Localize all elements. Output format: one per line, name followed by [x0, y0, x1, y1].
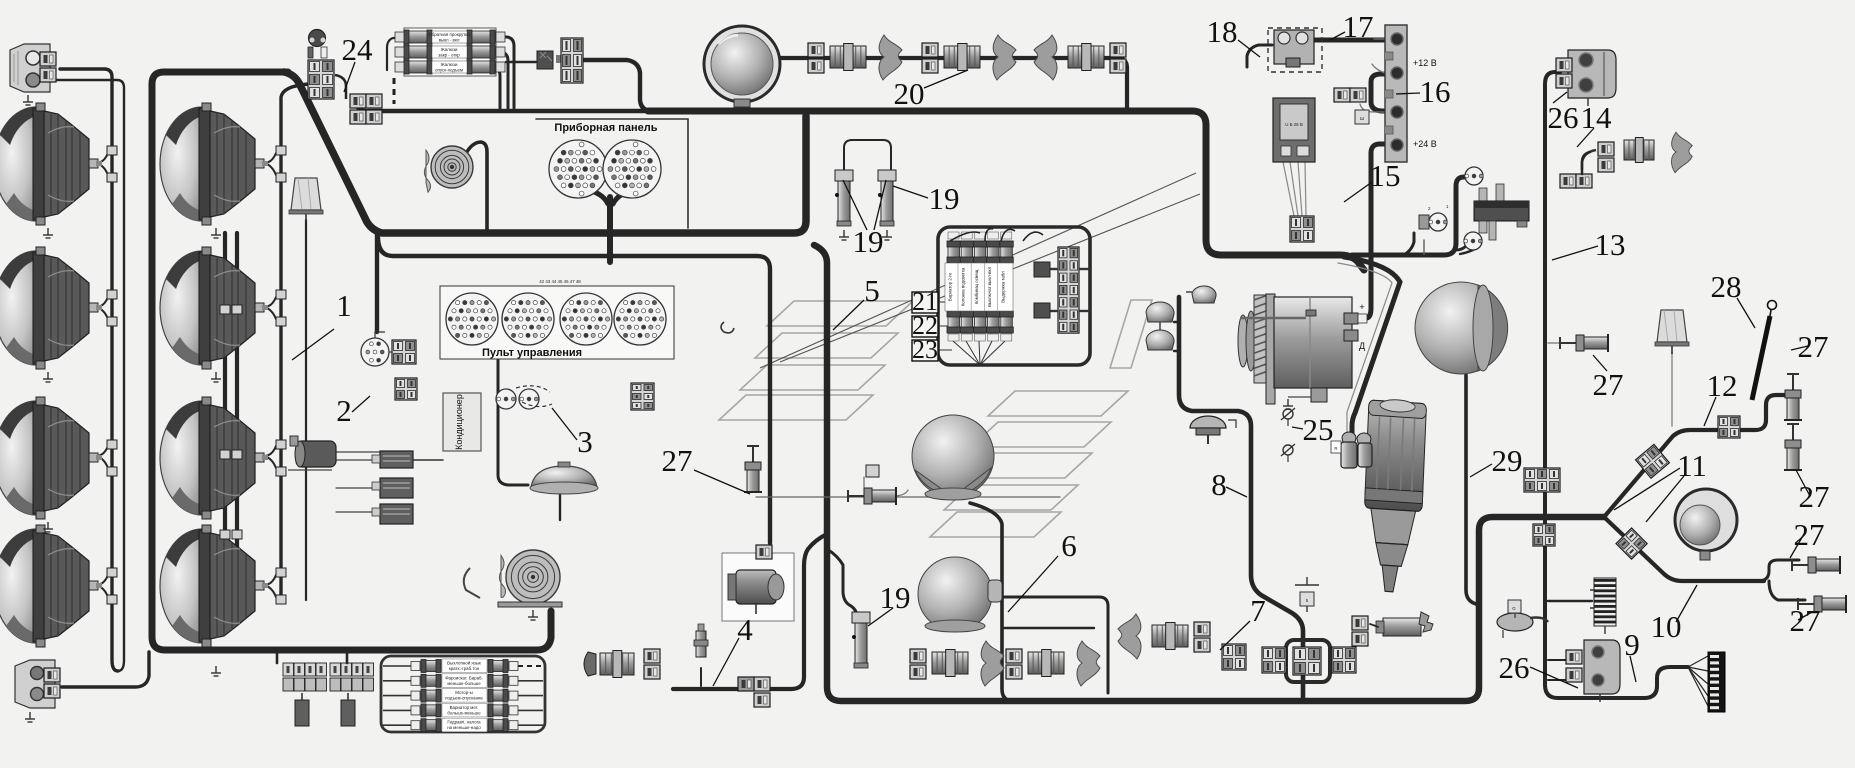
svg-text:16: 16: [1420, 74, 1451, 109]
svg-text:9: 9: [1624, 627, 1640, 662]
svg-text:+24 В: +24 В: [1413, 139, 1437, 149]
svg-text:5: 5: [864, 273, 880, 308]
svg-text:Ш: Ш: [1360, 116, 1364, 121]
svg-text:Выхлопной язык: Выхлопной язык: [447, 661, 481, 666]
svg-text:19: 19: [853, 224, 884, 259]
svg-text:подъем-опускание: подъем-опускание: [445, 696, 483, 701]
svg-text:Комбинац освещ: Комбинац освещ: [974, 269, 979, 304]
svg-text:13: 13: [1595, 227, 1626, 262]
svg-text:больше-меньше: больше-меньше: [447, 710, 481, 715]
svg-text:2: 2: [336, 393, 352, 428]
svg-text:10: 10: [1651, 609, 1682, 644]
svg-text:+12 В: +12 В: [1413, 58, 1437, 68]
svg-text:24: 24: [342, 32, 374, 67]
svg-text:11: 11: [1677, 448, 1707, 483]
svg-text:Жалюзи: Жалюзи: [441, 62, 458, 67]
svg-text:7: 7: [1250, 593, 1266, 628]
svg-text:19: 19: [880, 580, 911, 615]
svg-text:Выключат выкл-вкл: Выключат выкл-вкл: [987, 267, 992, 307]
svg-text:27: 27: [1593, 367, 1624, 402]
svg-text:Пульт управления: Пульт управления: [482, 347, 582, 359]
svg-text:выкл - вкл: выкл - вкл: [439, 38, 460, 43]
svg-text:25: 25: [1303, 412, 1334, 447]
svg-text:R: R: [1334, 446, 1337, 451]
svg-text:17: 17: [1343, 9, 1374, 44]
svg-text:закр - откр: закр - откр: [438, 53, 460, 58]
svg-text:27: 27: [1794, 517, 1825, 552]
svg-text:29: 29: [1492, 443, 1523, 478]
svg-text:Колонка подсветка: Колонка подсветка: [961, 267, 966, 306]
svg-text:кратк.-граб.тон: кратк.-граб.тон: [449, 666, 480, 671]
svg-text:U Б 28 В: U Б 28 В: [1285, 122, 1303, 127]
svg-text:1: 1: [1446, 204, 1449, 209]
svg-text:2: 2: [1428, 206, 1431, 211]
svg-text:18: 18: [1207, 14, 1238, 49]
svg-text:Выдержка табл: Выдержка табл: [1000, 271, 1005, 303]
svg-text:+: +: [1359, 302, 1364, 312]
svg-text:Жалюзи: Жалюзи: [441, 47, 458, 52]
svg-text:20: 20: [894, 76, 925, 111]
svg-text:14: 14: [1581, 100, 1613, 135]
svg-text:Фароискат. Бараб.: Фароискат. Бараб.: [445, 675, 483, 680]
svg-text:Приборная панель: Приборная панель: [554, 122, 657, 134]
svg-text:меньше-больше: меньше-больше: [447, 681, 481, 686]
svg-text:6: 6: [1061, 528, 1077, 563]
svg-text:G: G: [1512, 606, 1516, 611]
svg-text:Д: Д: [1359, 341, 1365, 351]
svg-text:3: 3: [577, 424, 593, 459]
svg-text:8: 8: [1211, 467, 1227, 502]
svg-text:опуск-подъем: опуск-подъем: [435, 68, 463, 73]
svg-text:27: 27: [662, 443, 693, 478]
svg-text:Вариатор 2-го: Вариатор 2-го: [948, 272, 953, 301]
svg-text:Вариатор мет.: Вариатор мет.: [450, 705, 479, 710]
svg-text:27: 27: [1790, 603, 1821, 638]
svg-text:1: 1: [336, 288, 352, 323]
svg-text:12: 12: [1707, 368, 1738, 403]
svg-text:Кондиционер: Кондиционер: [454, 394, 464, 450]
svg-text:26: 26: [1499, 650, 1530, 685]
svg-text:15: 15: [1370, 158, 1401, 193]
svg-text:26: 26: [1548, 100, 1579, 135]
svg-text:Гидравл. налога: Гидравл. налога: [447, 720, 481, 725]
svg-text:23: 23: [912, 335, 938, 364]
svg-text:42 43 44 45 46 47 48: 42 43 44 45 46 47 48: [539, 279, 581, 284]
svg-text:27: 27: [1798, 329, 1829, 364]
svg-text:4: 4: [737, 612, 753, 647]
svg-text:Обратная прокрутка: Обратная прокрутка: [428, 32, 470, 37]
svg-text:на меньше-надо: на меньше-надо: [447, 725, 481, 730]
svg-text:19: 19: [929, 181, 960, 216]
svg-text:Мотор-ы: Мотор-ы: [455, 690, 473, 695]
